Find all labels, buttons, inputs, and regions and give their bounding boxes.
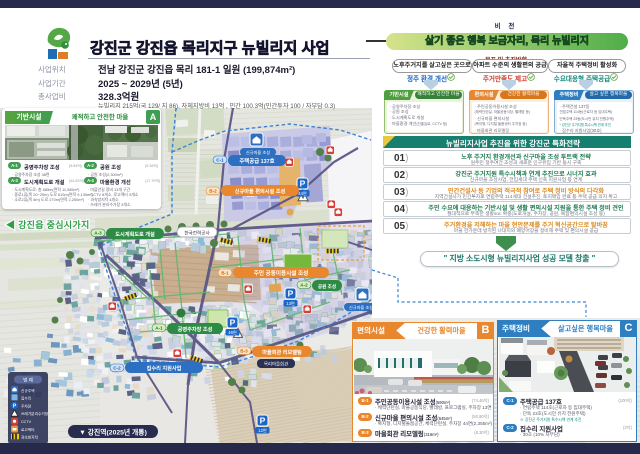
svg-text:주차장: 주차장 [21,403,32,408]
svg-text:신규마을 편의시설 조성: 신규마을 편의시설 조성 [235,187,286,195]
svg-text:▼ 강진역(2025년 개통): ▼ 강진역(2025년 개통) [79,428,147,437]
svg-text:CCTV: CCTV [21,420,32,424]
svg-text:한국전력공사: 한국전력공사 [184,229,210,236]
svg-text:B-1: B-1 [221,271,229,276]
svg-text:신규마을 조성: 신규마을 조성 [349,304,373,311]
svg-text:P: P [260,416,266,426]
svg-text:집수리: 집수리 [21,396,31,401]
svg-text:도시계획도로 개설: 도시계획도로 개설 [115,230,155,238]
svg-text:공원 조성: 공원 조성 [318,283,336,290]
svg-text:P: P [300,179,306,189]
svg-text:A-3: A-3 [94,231,102,236]
svg-text:로고젝터: 로고젝터 [21,427,35,432]
svg-text:C-2: C-2 [113,366,121,371]
svg-text:P: P [288,289,294,299]
svg-text:쓰레기분리수거장: 쓰레기분리수거장 [21,411,49,416]
svg-text:A-2: A-2 [300,283,308,288]
svg-text:집수리 지원사업: 집수리 지원사업 [147,364,182,372]
svg-text:46면: 46면 [228,329,237,335]
svg-text:공영주차장 조성: 공영주차장 조성 [178,325,213,333]
svg-text:B-2: B-2 [209,189,217,194]
svg-text:신규마을 조성: 신규마을 조성 [246,149,270,156]
svg-text:주택공급 137호: 주택공급 137호 [239,157,274,165]
svg-text:주민 공동이용시설 조성: 주민 공동이용시설 조성 [254,269,309,277]
svg-text:P: P [230,318,236,328]
svg-text:13면: 13면 [286,300,295,306]
svg-text:A-1: A-1 [155,326,163,331]
svg-text:범 례: 범 례 [23,377,33,384]
svg-text:C-1: C-1 [216,158,224,163]
svg-text:과속방지턱: 과속방지턱 [21,435,38,440]
svg-text:목리마을회관: 목리마을회관 [264,361,288,368]
svg-text:신규주택: 신규주택 [21,388,35,393]
svg-text:마을회관 리모델링: 마을회관 리모델링 [262,348,302,356]
svg-text:◀ 강진읍 중심시가지: ◀ 강진읍 중심시가지 [6,219,90,230]
svg-text:B-3: B-3 [240,349,248,354]
svg-text:12면: 12면 [258,427,267,433]
svg-text:44면: 44면 [298,190,307,196]
